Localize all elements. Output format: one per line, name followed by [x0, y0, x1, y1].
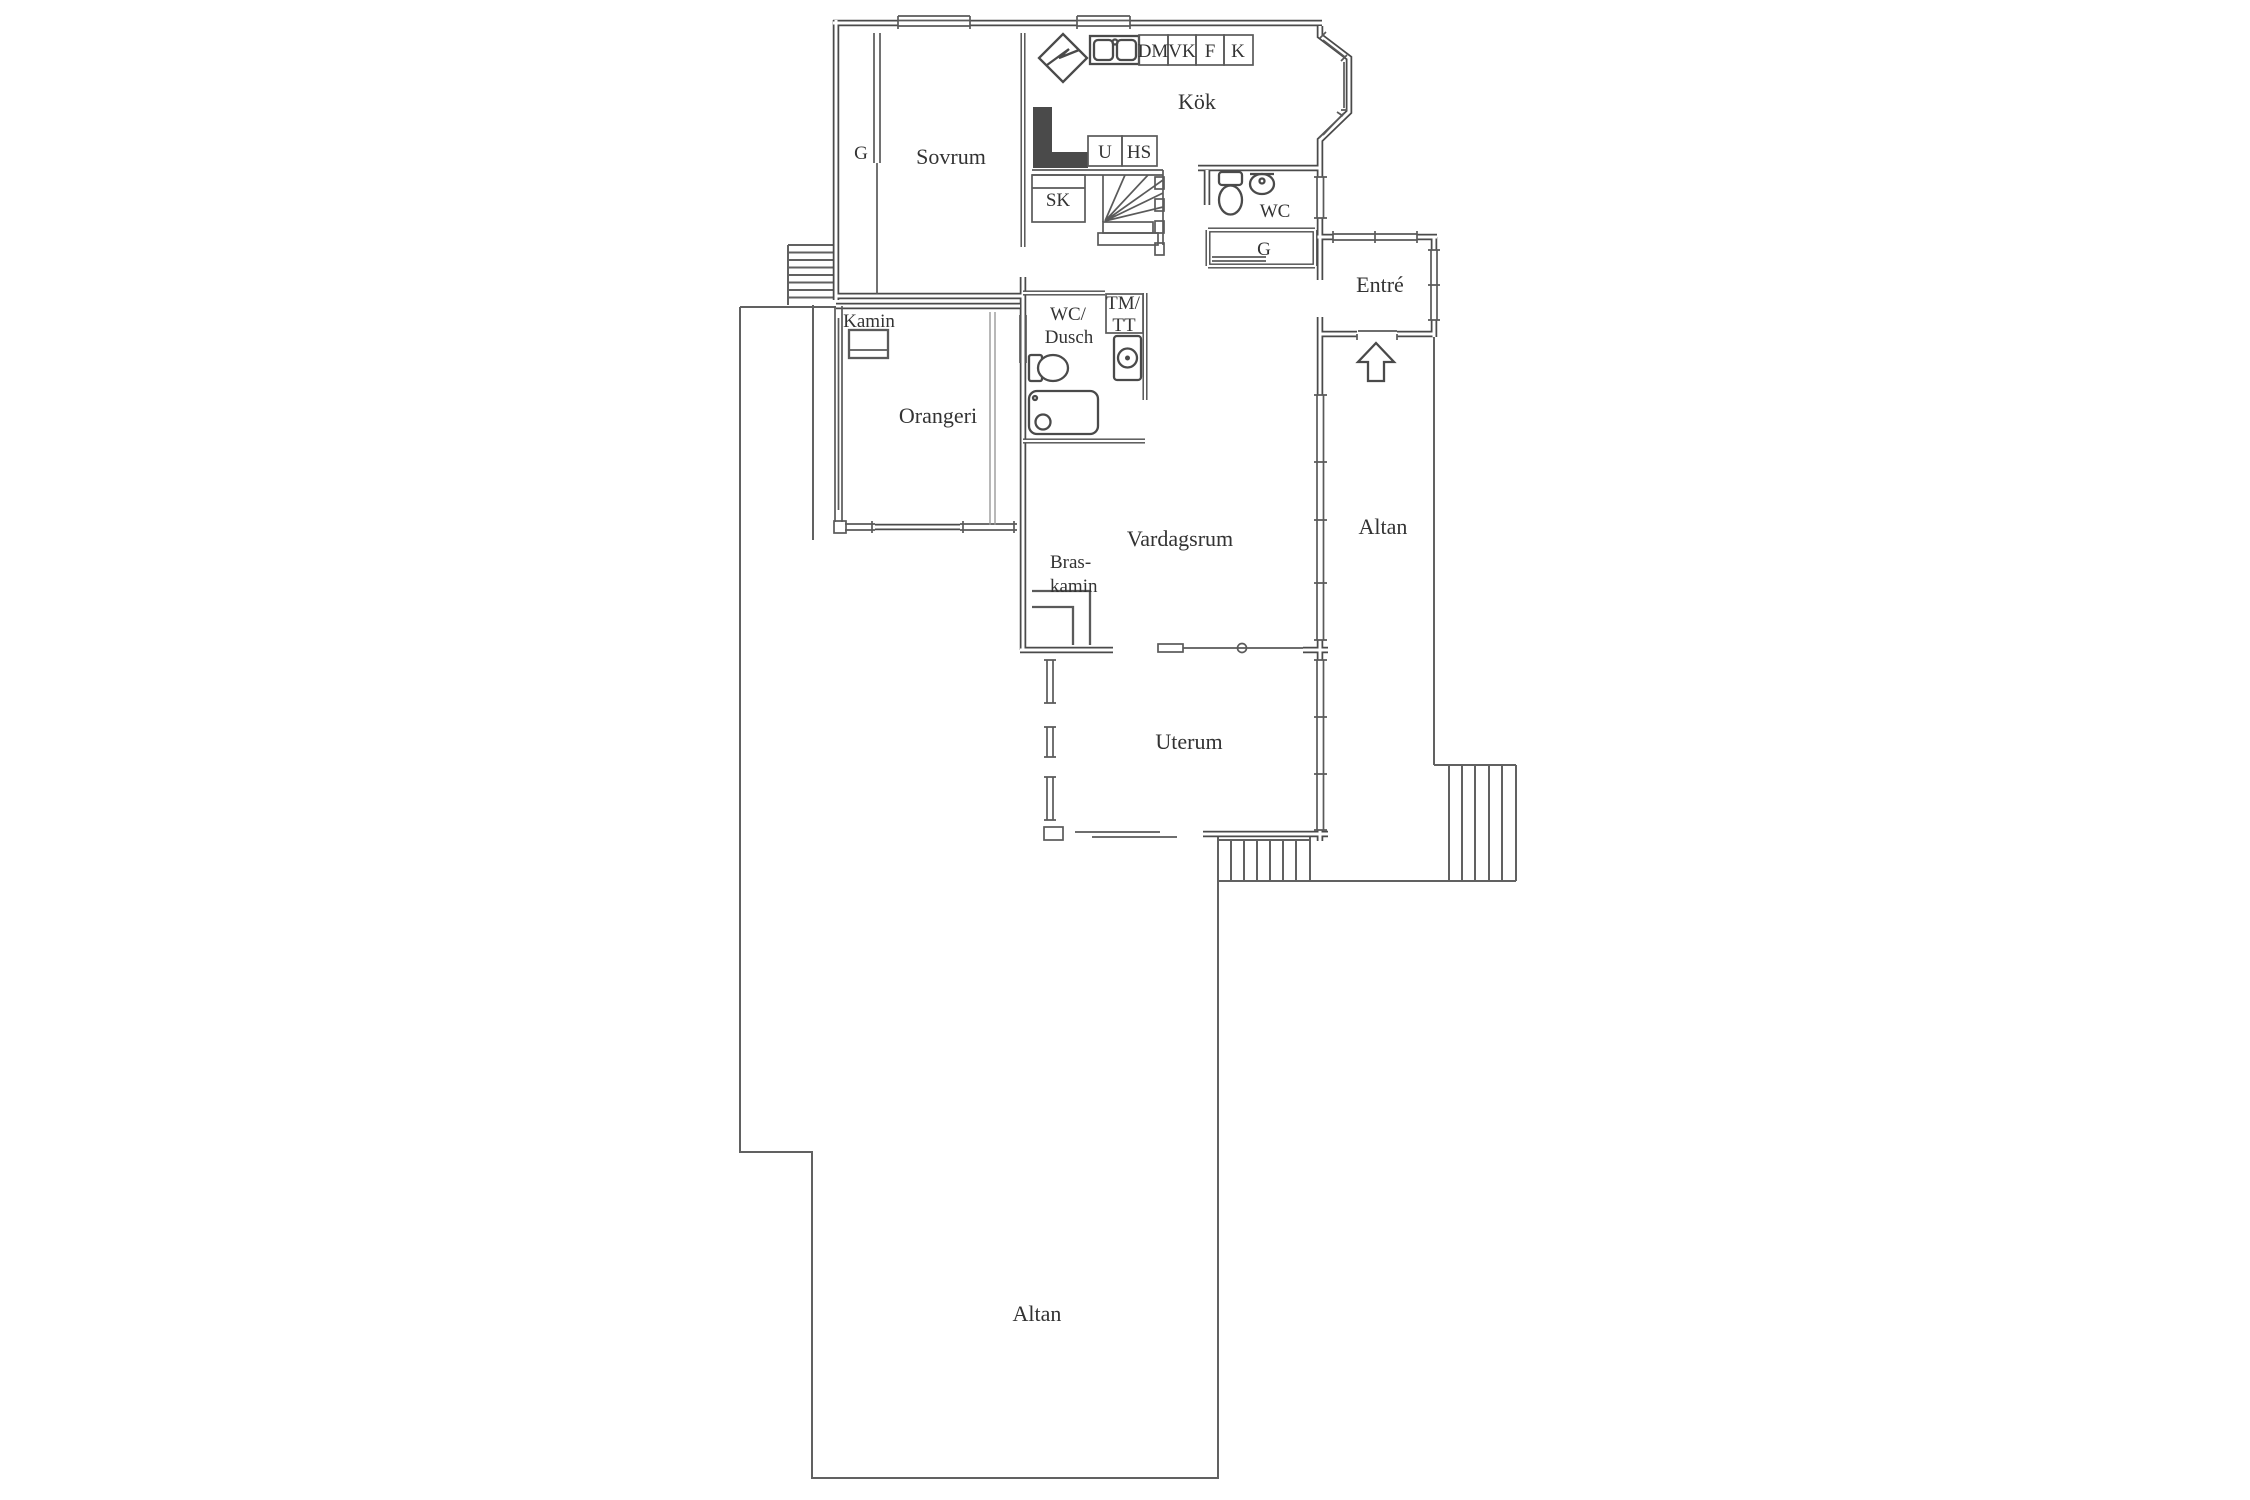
label-k: K	[1231, 41, 1245, 62]
faucet-icon	[1113, 40, 1118, 45]
window-entre-top	[1333, 231, 1417, 243]
stove-icon	[1039, 34, 1087, 82]
braskamin-icon	[1032, 591, 1090, 645]
label-kamin: Kamin	[843, 311, 895, 332]
window-top-2	[1077, 16, 1130, 29]
altan-lower-outline	[740, 307, 1516, 1478]
window-vardagsrum-east	[1314, 395, 1327, 640]
room-label-altan-lower: Altan	[1013, 1301, 1062, 1326]
interior-walls	[1023, 33, 1315, 441]
room-label-wc: WC	[1260, 201, 1291, 222]
label-u: U	[1098, 142, 1112, 163]
room-label-wc-dusch-2: Dusch	[1045, 327, 1094, 348]
label-tm-tt-2: TT	[1112, 315, 1136, 336]
toilet-icon-wc	[1219, 172, 1242, 185]
window-uterum-east	[1314, 660, 1327, 830]
label-hs: HS	[1127, 142, 1151, 163]
floor-plan: Kök Sovrum G DM VK F K U HS SK WC G Entr…	[0, 0, 2250, 1500]
window-east-wc	[1314, 177, 1327, 218]
bath-fixtures	[1029, 172, 1274, 434]
window-entre-east	[1428, 250, 1440, 320]
label-braskamin-2: kamin	[1050, 576, 1098, 597]
orangeri-corner-post	[834, 521, 846, 533]
entre-threshold	[1357, 331, 1397, 340]
stairs-west-icon	[788, 245, 836, 305]
room-label-vardagsrum: Vardagsrum	[1127, 526, 1233, 551]
label-g-sovrum: G	[854, 143, 868, 164]
label-vk: VK	[1168, 41, 1196, 62]
room-label-sovrum: Sovrum	[916, 144, 986, 169]
uterum-sliding-door	[1075, 832, 1177, 837]
room-label-entre: Entré	[1356, 272, 1404, 297]
kitchen-l-wall	[1033, 107, 1088, 168]
kamin-icon	[849, 330, 888, 358]
stairs-south-icon	[1218, 833, 1310, 882]
window-orangeri-east	[990, 312, 995, 525]
room-label-wc-dusch-1: WC/	[1050, 304, 1087, 325]
stairs-east-icon	[1449, 765, 1502, 881]
label-f: F	[1205, 41, 1216, 62]
window-top-1	[898, 16, 970, 29]
label-g-hall: G	[1257, 239, 1271, 260]
room-label-altan-upper: Altan	[1359, 514, 1408, 539]
wardrobe-front-sovrum	[874, 33, 880, 294]
room-label-orangeri: Orangeri	[899, 403, 977, 428]
entrance-arrow-icon	[1358, 343, 1394, 381]
room-label-kok: Kök	[1178, 89, 1216, 114]
window-orangeri-west	[835, 306, 842, 522]
label-dm: DM	[1138, 41, 1169, 62]
vardagsrum-sliding-door	[1158, 644, 1183, 652]
staircase	[1098, 175, 1164, 255]
label-tm-tt-1: TM/	[1106, 293, 1141, 314]
label-sk: SK	[1046, 190, 1071, 211]
window-uterum-west	[1044, 660, 1056, 820]
floor-plan-svg: Kök Sovrum G DM VK F K U HS SK WC G Entr…	[0, 0, 2250, 1500]
room-label-uterum: Uterum	[1155, 729, 1222, 754]
deck-outlines	[740, 245, 1516, 1478]
uterum-corner-post	[1044, 827, 1063, 840]
label-braskamin-1: Bras-	[1050, 552, 1091, 573]
